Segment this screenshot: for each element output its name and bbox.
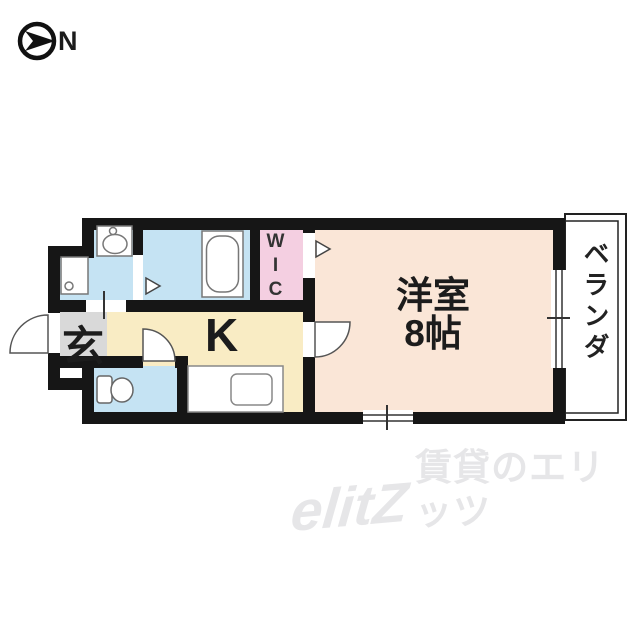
watermark-logo: elitZ [289, 474, 410, 540]
floor-plan-page: N 玄 K WIC 洋室 8帖 ベランダ elitZ 賃貸のエリッツ [0, 0, 640, 640]
watermark-text: 賃貸のエリッツ [415, 446, 640, 535]
toilet [97, 376, 133, 403]
washing-machine-pan [61, 257, 88, 294]
veranda-label: ベランダ [577, 240, 614, 364]
entrance-door-arc [10, 315, 48, 353]
entrance-label: 玄 [62, 313, 104, 374]
compass-icon [20, 24, 55, 58]
north-label: N [58, 26, 78, 57]
bathtub [202, 231, 243, 297]
western-room-label: 洋室 [368, 277, 498, 315]
bath-sliding-door-gap [133, 255, 143, 300]
western-room-size-label: 8帖 [368, 315, 498, 353]
washbasin [97, 226, 132, 256]
western-room-label-block: 洋室 8帖 [368, 277, 498, 352]
watermark: elitZ 賃貸のエリッツ [292, 446, 640, 535]
kitchen-counter [188, 366, 283, 412]
wic-label: WIC [264, 231, 286, 303]
kitchen-label: K [205, 308, 238, 362]
